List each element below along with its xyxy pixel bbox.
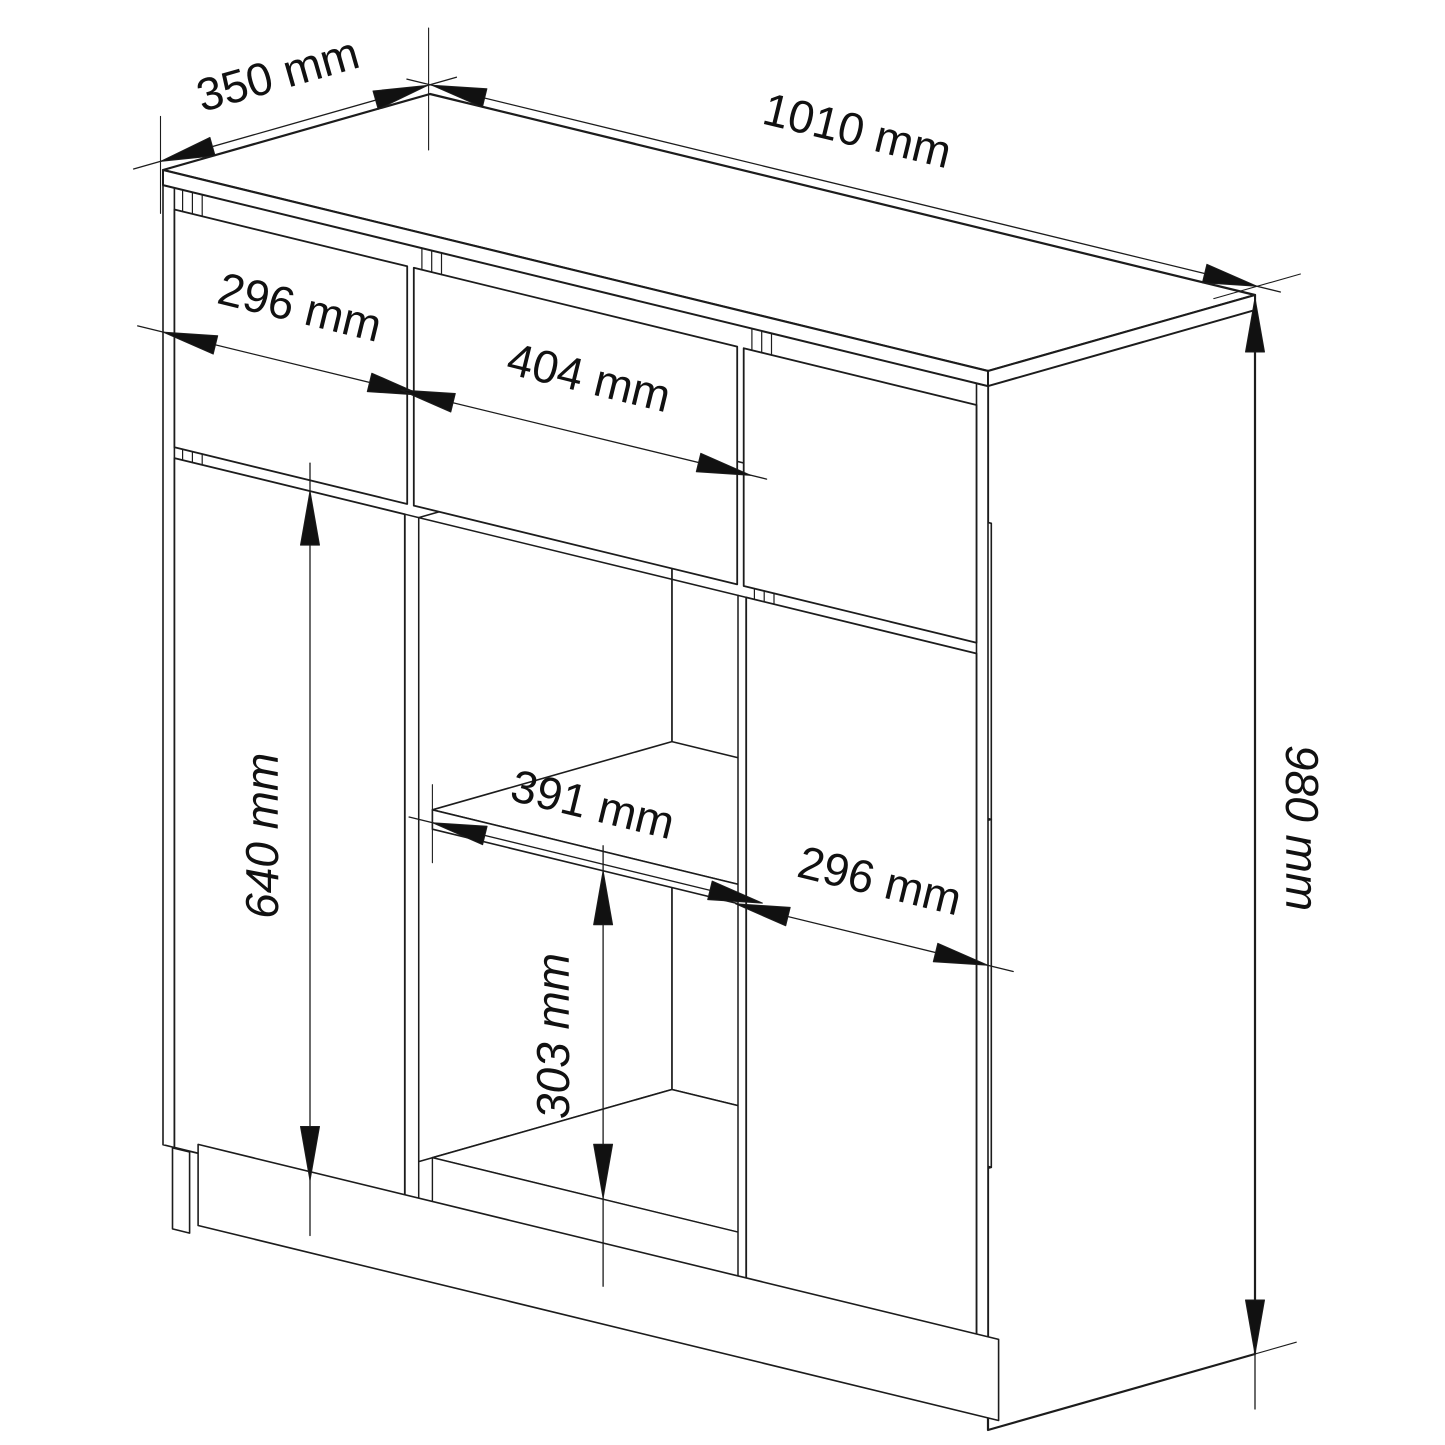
- sideboard-dimension-diagram: 350 mm 1010 mm 296 mm 404 mm 640 mm 391 …: [0, 0, 1445, 1445]
- dim-label-top-depth: 350 mm: [191, 26, 365, 122]
- dim-label-top-width: 1010 mm: [758, 82, 957, 178]
- dim-label-left-door-height: 640 mm: [236, 753, 288, 919]
- dim-label-lower-shelf-height: 303 mm: [527, 953, 579, 1119]
- dim-label-overall-height: 980 mm: [1276, 745, 1328, 911]
- drawing-page: 350 mm 1010 mm 296 mm 404 mm 640 mm 391 …: [0, 0, 1445, 1445]
